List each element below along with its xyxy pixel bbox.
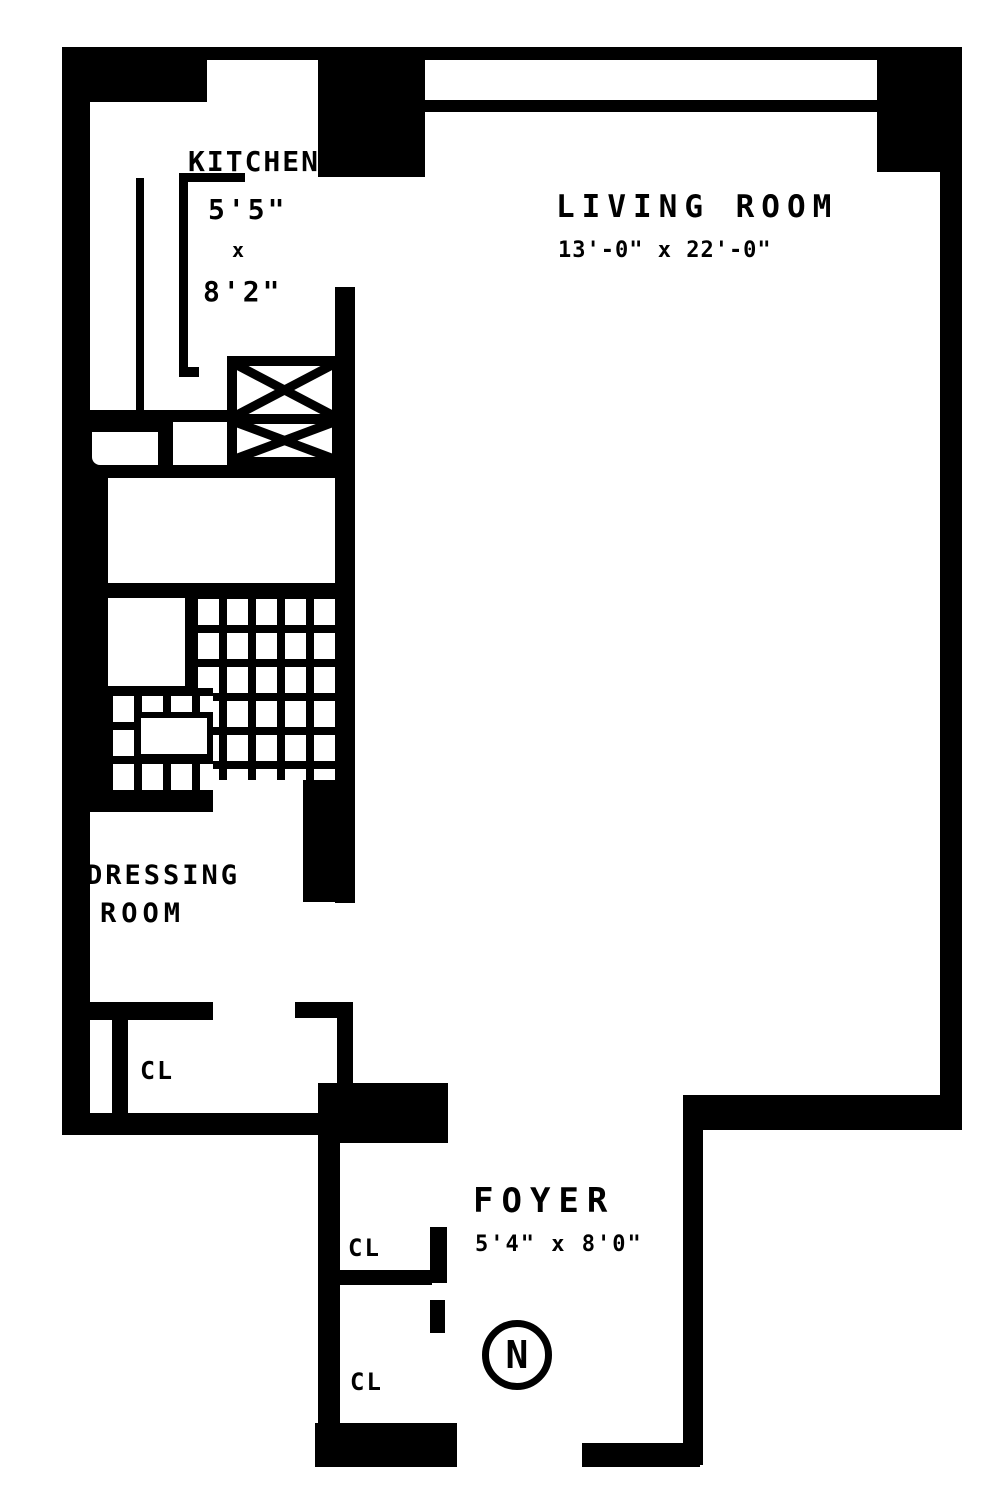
kitchen-dimension-separator: x xyxy=(232,240,244,260)
closet-left-wall xyxy=(112,1020,128,1115)
livingroom-bottom-right-wall xyxy=(683,1095,962,1130)
kitchen-counter-foot-line xyxy=(179,367,199,377)
closet-top-wall-segment xyxy=(295,1002,337,1018)
foyer-right-wall xyxy=(683,1095,703,1465)
wall-right xyxy=(940,47,962,1130)
north-compass-letter: N xyxy=(506,1333,529,1377)
wall-bottom-left xyxy=(62,1113,340,1135)
kitchen-counter-side-line xyxy=(179,173,188,377)
closet-top-wall xyxy=(78,1002,213,1020)
foyer-closet-lower-label: CL xyxy=(350,1370,383,1394)
living-room-dimensions: 13'-0" x 22'-0" xyxy=(558,240,772,262)
foyer-closet-divider-wall xyxy=(337,1270,432,1285)
closet-right-wall xyxy=(337,1002,353,1090)
foyer-closet-upper-label: CL xyxy=(348,1236,381,1260)
kitchen-dimension-width: 5'5" xyxy=(208,196,287,224)
dressing-room-label-line1: DRESSING xyxy=(86,862,240,889)
window-inner-line-living xyxy=(425,100,877,112)
bathroom-vanity xyxy=(108,598,185,686)
foyer-label: FOYER xyxy=(473,1184,615,1218)
foyer-closet2-jamb xyxy=(430,1300,445,1333)
foyer-closet1-jamb xyxy=(430,1227,447,1283)
kitchen-label: KITCHEN xyxy=(188,148,320,176)
appliance-box-left xyxy=(92,432,158,465)
foyer-dimensions: 5'4" x 8'0" xyxy=(475,1234,643,1256)
floor-plan: KITCHEN 5'5" x 8'2" LIVING ROOM 13'-0" x… xyxy=(0,0,1000,1502)
shaft-x-box xyxy=(227,356,342,467)
living-room-label: LIVING ROOM xyxy=(556,192,838,223)
wall-top-mid-block xyxy=(318,47,425,177)
kitchen-dimension-length: 8'2" xyxy=(203,278,282,306)
dressing-room-label-line2: ROOM xyxy=(100,900,185,927)
dressing-closet-label: CL xyxy=(140,1058,174,1083)
bathroom-door-opening xyxy=(213,780,303,812)
foyer-bottom-left-wall xyxy=(315,1423,457,1467)
appliance-box-right xyxy=(173,422,227,465)
kitchen-partition-line xyxy=(136,178,144,418)
bathroom-corner-block xyxy=(303,780,355,902)
bathroom-tub xyxy=(135,712,213,760)
corridor-left-wall xyxy=(62,478,108,598)
north-compass: N xyxy=(482,1320,552,1390)
